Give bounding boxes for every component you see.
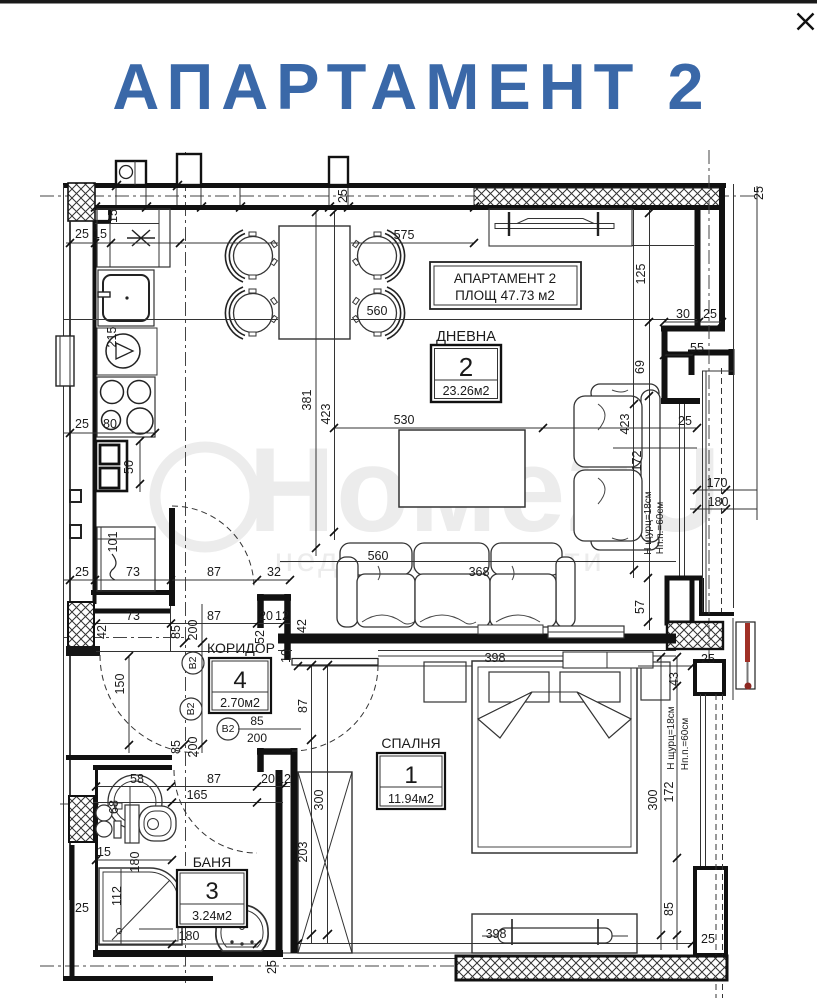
svg-text:БАНЯ: БАНЯ: [193, 854, 231, 870]
svg-text:42: 42: [95, 625, 109, 639]
svg-text:575: 575: [394, 228, 415, 242]
svg-text:25: 25: [75, 901, 89, 915]
svg-text:25: 25: [75, 417, 89, 431]
svg-text:АПАРТАМЕНТ 2: АПАРТАМЕНТ 2: [112, 50, 711, 123]
svg-text:560: 560: [367, 304, 388, 318]
svg-text:В2: В2: [187, 656, 199, 669]
svg-text:В2: В2: [222, 723, 235, 735]
svg-text:30: 30: [676, 307, 690, 321]
svg-text:101: 101: [106, 532, 120, 553]
svg-text:215: 215: [105, 327, 119, 348]
svg-text:50: 50: [122, 460, 136, 474]
svg-text:560: 560: [368, 549, 389, 563]
svg-text:398: 398: [486, 927, 507, 941]
svg-text:112: 112: [110, 886, 124, 906]
svg-text:200: 200: [247, 731, 267, 745]
svg-text:69: 69: [633, 360, 647, 374]
svg-text:381: 381: [300, 390, 314, 411]
svg-text:368: 368: [469, 565, 490, 579]
svg-text:68: 68: [107, 800, 121, 814]
svg-text:87: 87: [207, 772, 221, 786]
svg-text:398: 398: [485, 651, 506, 665]
svg-text:200: 200: [186, 737, 200, 758]
svg-text:172: 172: [630, 451, 644, 472]
svg-text:ПЛОЩ 47.73 м2: ПЛОЩ 47.73 м2: [455, 288, 555, 303]
svg-text:25: 25: [75, 565, 89, 579]
svg-text:В2: В2: [185, 702, 197, 715]
svg-text:203: 203: [296, 842, 310, 863]
svg-text:15: 15: [97, 845, 111, 859]
svg-text:4: 4: [233, 667, 246, 694]
svg-text:3: 3: [205, 878, 218, 905]
svg-text:300: 300: [646, 790, 660, 811]
svg-text:25: 25: [336, 189, 350, 203]
svg-text:55: 55: [690, 341, 704, 355]
svg-text:АПАРТАМЕНТ 2: АПАРТАМЕНТ 2: [454, 271, 556, 286]
svg-text:25: 25: [701, 652, 715, 666]
svg-text:15: 15: [106, 209, 120, 223]
svg-text:57: 57: [633, 600, 647, 614]
svg-text:25: 25: [678, 414, 692, 428]
svg-text:180: 180: [179, 929, 200, 943]
svg-text:25: 25: [701, 932, 715, 946]
svg-text:58: 58: [130, 772, 144, 786]
svg-text:СПАЛНЯ: СПАЛНЯ: [381, 735, 440, 751]
svg-text:170: 170: [707, 476, 728, 490]
svg-text:85: 85: [169, 740, 183, 754]
svg-text:Н щурц=18см: Н щурц=18см: [643, 491, 654, 554]
svg-text:23.26м2: 23.26м2: [443, 384, 490, 398]
svg-text:80: 80: [103, 417, 117, 431]
svg-text:180: 180: [708, 495, 729, 509]
svg-text:125: 125: [634, 264, 648, 285]
svg-text:2.70м2: 2.70м2: [220, 696, 260, 710]
svg-text:20: 20: [259, 609, 273, 623]
svg-text:42: 42: [295, 619, 309, 633]
svg-text:12: 12: [275, 609, 289, 623]
svg-text:ДНЕВНА: ДНЕВНА: [436, 329, 496, 345]
svg-text:85: 85: [169, 625, 183, 639]
svg-text:172: 172: [662, 782, 676, 803]
svg-text:10: 10: [279, 649, 293, 663]
svg-text:73: 73: [126, 609, 140, 623]
svg-text:87: 87: [207, 609, 221, 623]
svg-text:87: 87: [296, 699, 310, 713]
svg-text:85: 85: [250, 714, 264, 728]
svg-text:11.94м2: 11.94м2: [388, 792, 434, 806]
svg-text:25: 25: [703, 307, 717, 321]
svg-text:3.24м2: 3.24м2: [192, 909, 232, 923]
svg-text:300: 300: [312, 790, 326, 811]
svg-text:2: 2: [459, 352, 473, 382]
svg-text:165: 165: [187, 788, 208, 802]
svg-text:25: 25: [75, 227, 89, 241]
svg-text:Н щурц=18см: Н щурц=18см: [666, 706, 677, 769]
svg-text:20: 20: [261, 772, 275, 786]
svg-text:423: 423: [618, 414, 632, 435]
svg-text:52: 52: [253, 630, 267, 644]
svg-text:87: 87: [207, 565, 221, 579]
svg-text:530: 530: [394, 413, 415, 427]
svg-text:32: 32: [267, 565, 281, 579]
svg-text:Нп.п.=60см: Нп.п.=60см: [655, 502, 666, 555]
svg-text:15: 15: [93, 227, 107, 241]
svg-text:12: 12: [277, 772, 291, 786]
svg-text:73: 73: [126, 565, 140, 579]
svg-text:200: 200: [186, 620, 200, 641]
svg-text:85: 85: [662, 902, 676, 916]
svg-text:180: 180: [128, 852, 142, 873]
svg-text:Нп.п.=60см: Нп.п.=60см: [680, 718, 691, 771]
svg-text:150: 150: [113, 674, 127, 695]
svg-text:43: 43: [667, 672, 681, 686]
svg-text:25: 25: [265, 960, 279, 974]
svg-text:25: 25: [752, 186, 766, 200]
svg-text:1: 1: [404, 762, 417, 789]
svg-text:423: 423: [319, 404, 333, 425]
